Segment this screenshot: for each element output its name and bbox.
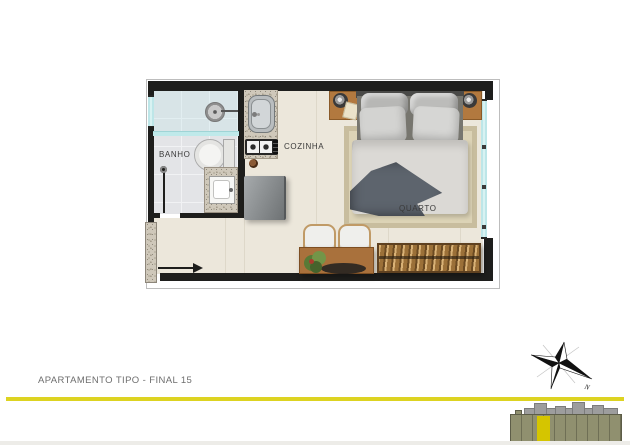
bottom-edge-strip <box>0 441 630 445</box>
cooktop-knobs <box>273 140 278 154</box>
refrigerator <box>244 176 286 220</box>
cooktop-burner-left <box>247 141 259 153</box>
bathroom-wall-bottom-left <box>150 213 160 218</box>
compass-north-label: N <box>583 383 591 392</box>
vanity-sink-basin <box>213 180 230 199</box>
kitchen-faucet-icon <box>252 112 257 117</box>
room-label-banho: BANHO <box>159 150 190 159</box>
desk-dark-object <box>321 263 366 274</box>
window-mullion-2 <box>482 185 486 189</box>
window-mullion-3 <box>482 225 486 229</box>
compass-icon: N <box>529 341 595 393</box>
toilet-tank <box>223 139 235 169</box>
wall-bottom-right-column <box>484 238 493 281</box>
window-left <box>148 95 154 128</box>
entry-granite-pilaster <box>145 222 157 283</box>
glass-partition <box>153 131 239 136</box>
table-lamp-right-icon <box>462 93 477 108</box>
pillow-main-left <box>359 106 407 144</box>
plan-title: APARTAMENTO TIPO - FINAL 15 <box>38 375 192 386</box>
wall-left <box>148 127 154 222</box>
wall-top-right-stub <box>485 81 493 100</box>
key-plan-body <box>510 414 622 442</box>
key-plan-highlighted-unit <box>537 416 550 441</box>
cooktop-burner-right <box>260 141 272 153</box>
bathroom-wall-bottom-right <box>180 213 244 218</box>
room-label-cozinha: COZINHA <box>284 142 324 151</box>
room-label-quarto: QUARTO <box>399 204 437 213</box>
entrance-arrow-head-icon <box>193 263 203 273</box>
window-right <box>481 99 487 239</box>
wall-top <box>148 81 493 91</box>
bathroom-door-knob <box>160 166 167 173</box>
key-plan-building-icon <box>506 402 626 443</box>
pillow-main-right <box>412 106 460 144</box>
vanity-faucet-icon <box>229 188 233 192</box>
window-mullion-1 <box>482 145 486 149</box>
plant-flower <box>309 259 314 264</box>
slatted-bench-rail <box>379 256 479 259</box>
shower-head-icon <box>205 102 225 122</box>
kitchen-bowl <box>249 159 258 168</box>
shower-arm <box>221 110 238 112</box>
yellow-divider-line <box>6 397 624 401</box>
plant-icon <box>304 251 326 273</box>
bathroom-door-leaf <box>163 172 165 213</box>
floorplan-page: BANHO COZINHA QUARTO APARTAMENTO TIPO - … <box>0 0 630 445</box>
wall-bottom <box>160 273 493 281</box>
entrance-arrow-shaft <box>158 267 194 269</box>
